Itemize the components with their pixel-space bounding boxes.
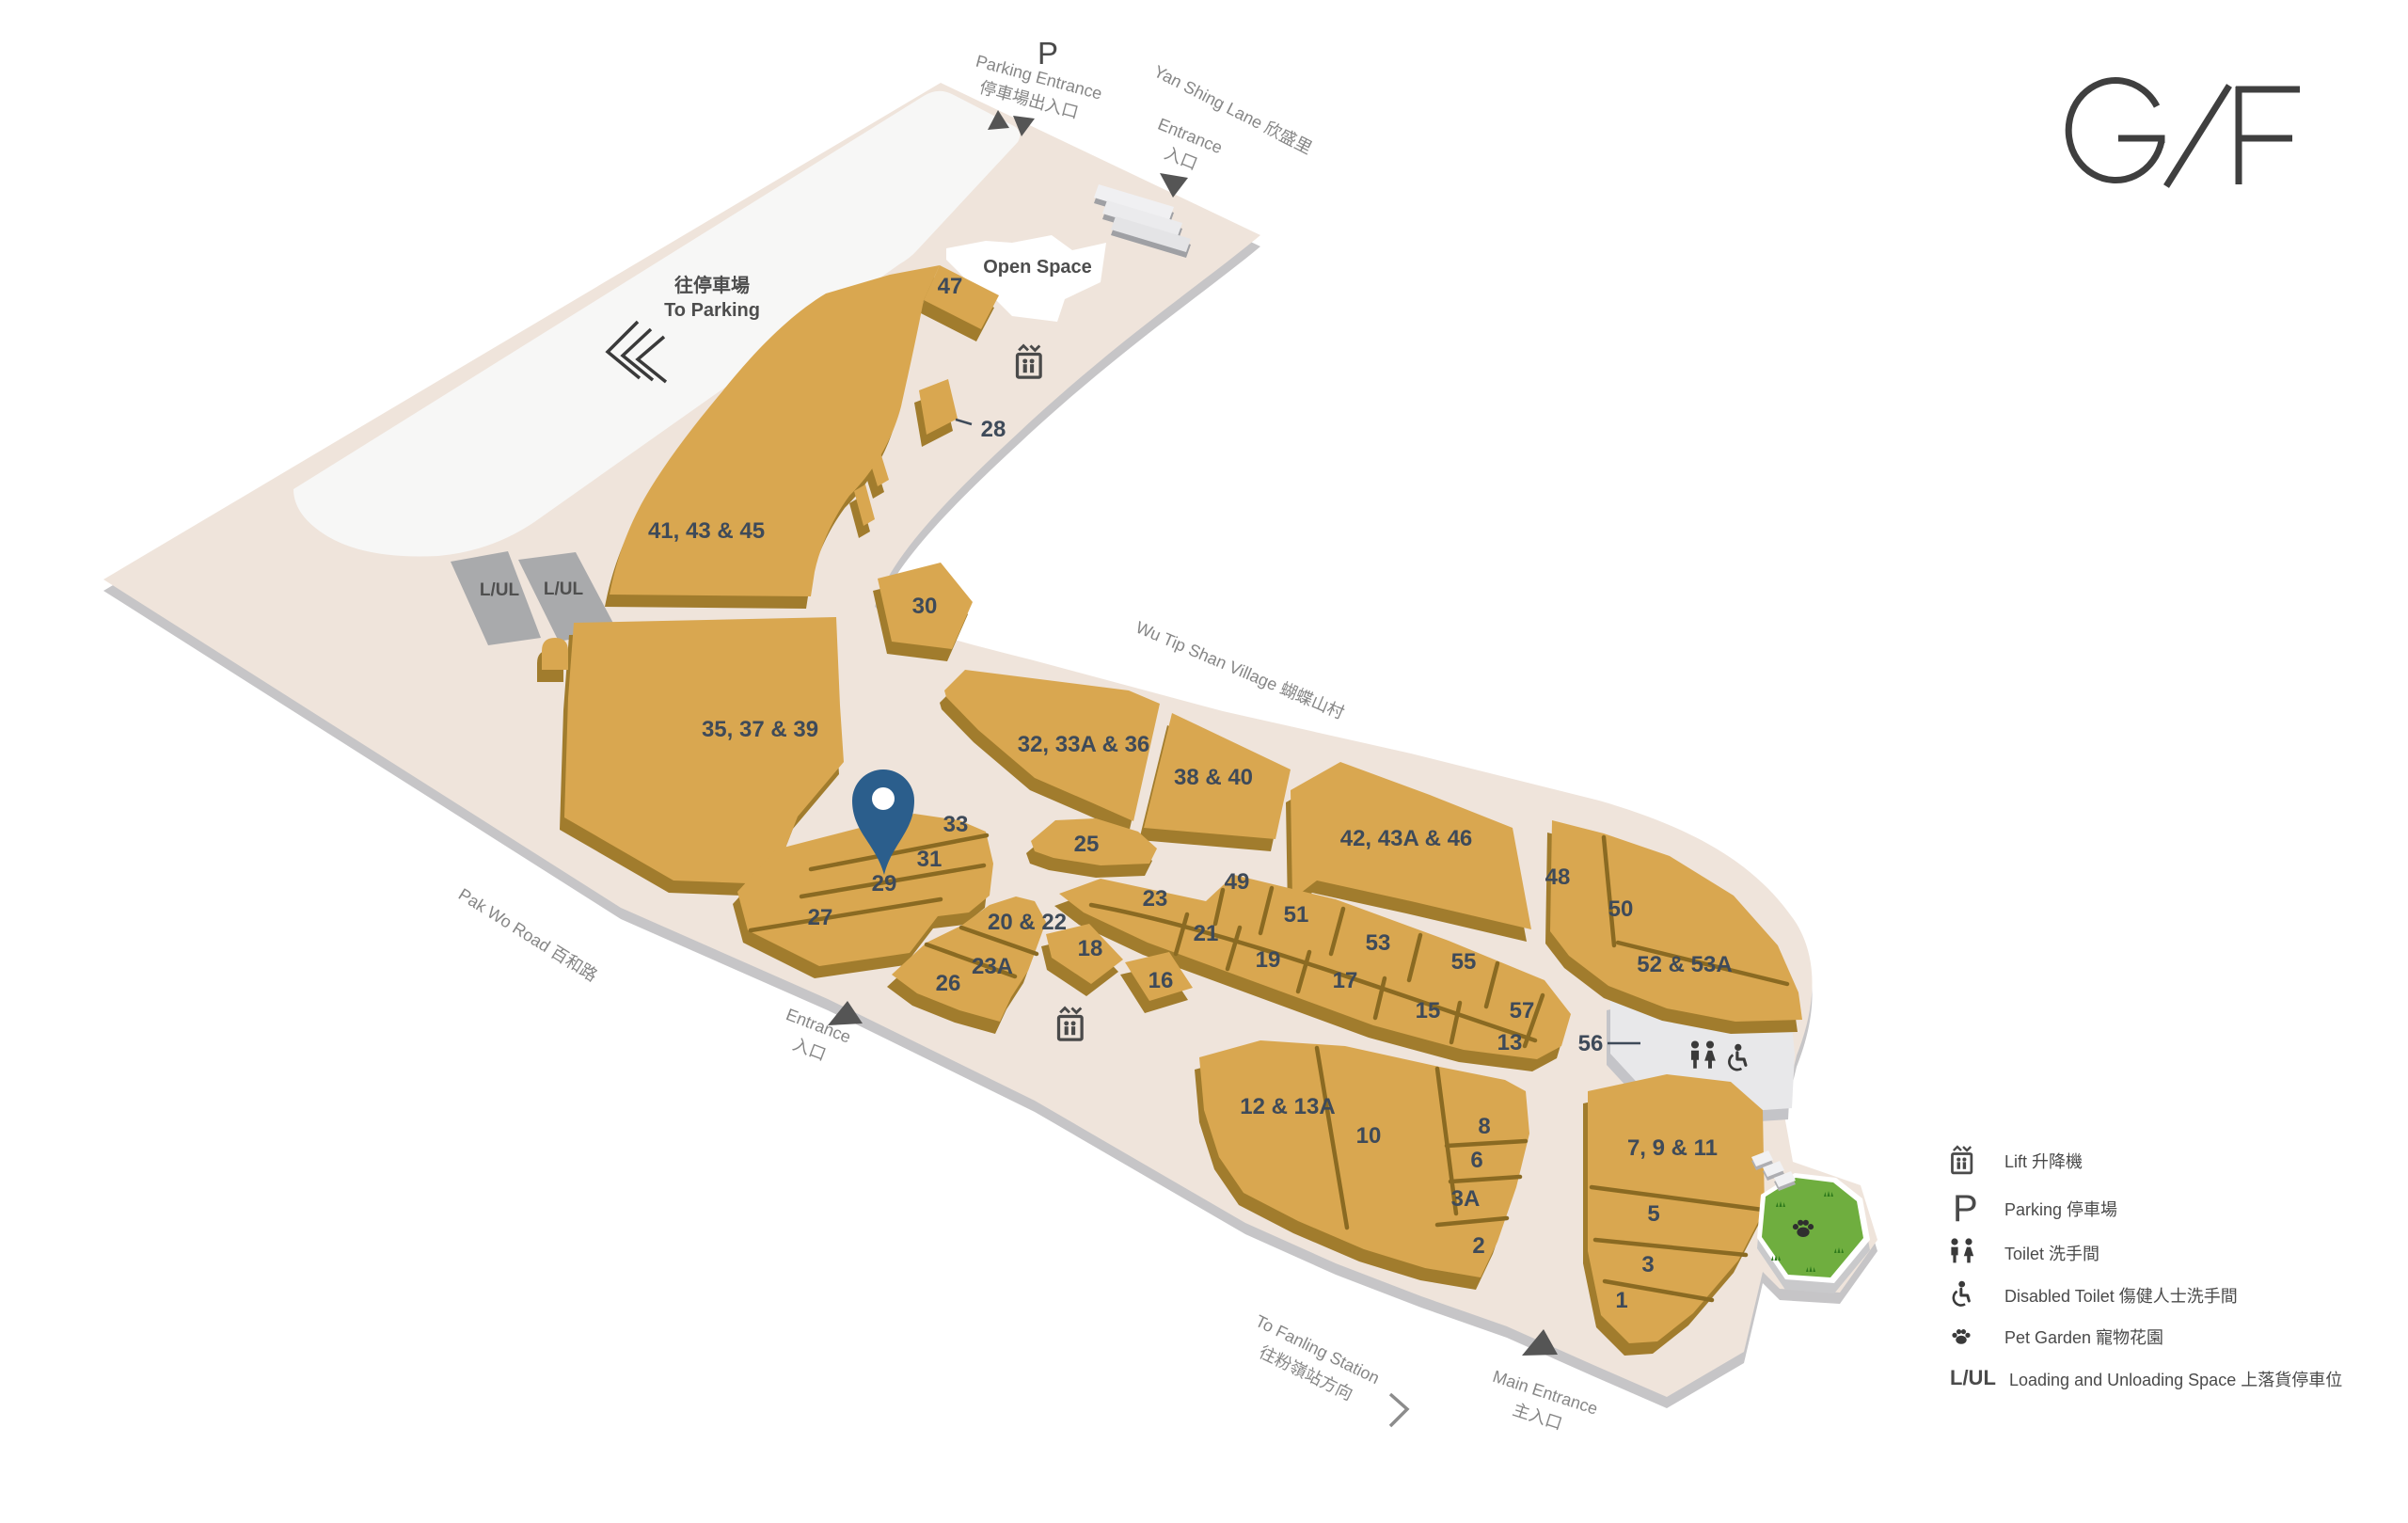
svg-text:2: 2 [1472,1233,1484,1259]
svg-text:15: 15 [1416,998,1441,1023]
svg-text:57: 57 [1510,998,1535,1023]
svg-text:20 & 22: 20 & 22 [988,910,1067,935]
svg-text:52 & 53A: 52 & 53A [1637,952,1732,977]
svg-text:30: 30 [912,594,938,619]
svg-text:41, 43 & 45: 41, 43 & 45 [648,518,765,544]
svg-text:17: 17 [1333,968,1358,993]
svg-text:23A: 23A [972,954,1013,979]
svg-text:31: 31 [917,847,943,872]
svg-text:33: 33 [943,812,969,837]
svg-text:51: 51 [1284,902,1309,928]
svg-text:32, 33A & 36: 32, 33A & 36 [1018,732,1150,757]
svg-text:Pet Garden 寵物花園: Pet Garden 寵物花園 [2004,1328,2163,1347]
svg-text:25: 25 [1074,832,1100,857]
svg-text:P: P [1953,1188,1978,1230]
svg-text:往停車場: 往停車場 [674,274,750,296]
svg-text:27: 27 [808,905,833,930]
svg-text:Lift 升降機: Lift 升降機 [2004,1152,2083,1171]
svg-text:49: 49 [1225,869,1250,895]
svg-text:Toilet 洗手間: Toilet 洗手間 [2004,1245,2099,1263]
svg-text:L/UL: L/UL [480,580,520,600]
svg-text:Open Space: Open Space [983,257,1092,278]
svg-text:53: 53 [1366,930,1391,956]
svg-text:L/UL: L/UL [544,579,584,599]
svg-text:35, 37 & 39: 35, 37 & 39 [702,717,818,742]
svg-text:18: 18 [1078,936,1103,961]
svg-text:38 & 40: 38 & 40 [1174,765,1253,790]
svg-text:26: 26 [936,971,961,996]
svg-text:7, 9 & 11: 7, 9 & 11 [1627,1135,1718,1161]
svg-text:1: 1 [1615,1288,1627,1313]
svg-text:Loading and Unloading Space 上落: Loading and Unloading Space 上落貨停車位 [2009,1371,2342,1389]
svg-text:21: 21 [1194,921,1219,946]
svg-text:19: 19 [1256,947,1281,973]
svg-text:48: 48 [1545,865,1571,890]
svg-text:6: 6 [1470,1148,1482,1173]
svg-text:To Parking: To Parking [664,300,760,321]
svg-text:3A: 3A [1451,1186,1481,1212]
svg-text:13: 13 [1497,1030,1523,1055]
svg-text:56: 56 [1578,1031,1604,1056]
svg-text:23: 23 [1143,886,1168,912]
svg-text:8: 8 [1478,1114,1490,1139]
svg-text:29: 29 [872,871,897,896]
svg-text:12 & 13A: 12 & 13A [1240,1094,1335,1119]
svg-text:28: 28 [981,417,1006,442]
svg-text:47: 47 [938,274,963,299]
svg-text:16: 16 [1149,968,1174,993]
svg-text:5: 5 [1647,1201,1659,1227]
svg-text:3: 3 [1641,1252,1654,1277]
svg-text:L/UL: L/UL [1950,1366,1996,1389]
svg-text:55: 55 [1451,949,1477,975]
svg-text:Parking 停車場: Parking 停車場 [2004,1200,2117,1219]
svg-text:Disabled Toilet 傷健人士洗手間: Disabled Toilet 傷健人士洗手間 [2004,1287,2238,1306]
svg-text:50: 50 [1608,896,1634,922]
svg-text:10: 10 [1356,1123,1382,1149]
svg-text:P: P [1038,36,1058,71]
svg-text:42, 43A & 46: 42, 43A & 46 [1340,826,1473,851]
